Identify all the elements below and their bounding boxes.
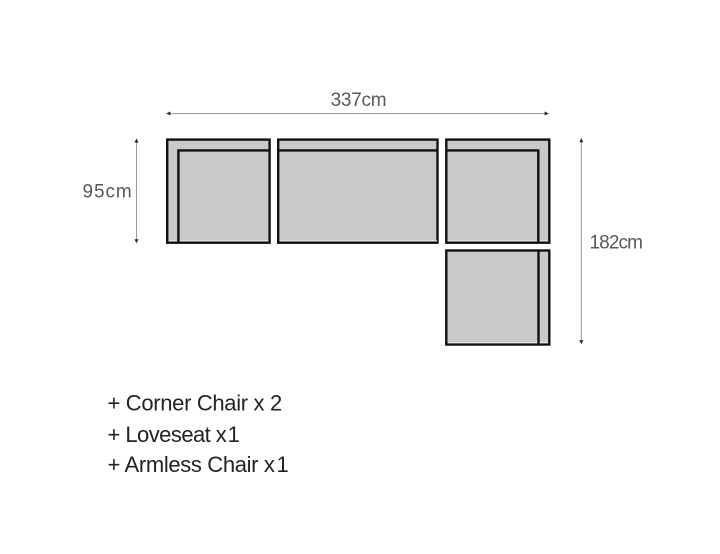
svg-text:337cm: 337cm [331, 90, 387, 111]
svg-text:95cm: 95cm [83, 181, 133, 202]
svg-text:+ Armless Chair x 1: + Armless Chair x 1 [108, 452, 289, 477]
svg-text:182cm: 182cm [590, 232, 643, 253]
svg-text:+ Corner Chair x 2: + Corner Chair x 2 [108, 391, 283, 416]
svg-text:+ Loveseat x 1: + Loveseat x 1 [108, 422, 240, 447]
